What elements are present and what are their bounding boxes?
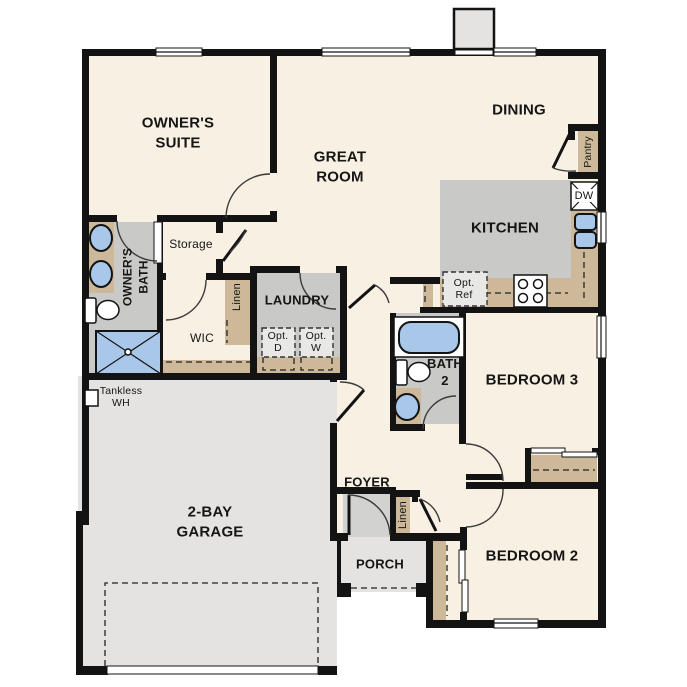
room-label-bedroom2: BEDROOM 2 [486, 546, 579, 566]
room-label-kitchen: KITCHEN [471, 218, 539, 238]
bedroom3-bypass-a [531, 448, 565, 453]
label-linen-wic: Linen [230, 283, 244, 311]
room-label-laundry: LAUNDRY [265, 293, 329, 310]
room-label-bedroom3: BEDROOM 3 [486, 370, 579, 390]
label-dishwasher: DW [575, 189, 594, 203]
room-label-owners-suite: OWNER'S SUITE [142, 114, 214, 153]
bedroom2-bypass-a [459, 550, 465, 583]
shower [96, 331, 161, 374]
room-label-porch: PORCH [356, 557, 404, 574]
label-wic: WIC [190, 331, 214, 347]
vanity-sink-1 [90, 225, 112, 251]
garage-door [107, 666, 318, 674]
floor-plan: OWNER'S SUITE GREAT ROOM DINING KITCHEN … [0, 0, 687, 687]
room-label-dining: DINING [492, 100, 546, 120]
kitchen-sink-1 [575, 214, 596, 230]
floor-plan-drawing [0, 0, 687, 687]
stove [514, 275, 547, 307]
label-opt-ref: Opt. Ref [454, 277, 475, 301]
label-storage: Storage [169, 237, 212, 253]
vanity-sink-2 [90, 261, 112, 287]
bath-pocket-door [154, 222, 162, 263]
toilet-bowl-owners [97, 301, 119, 320]
label-linen-foyer: Linen [396, 501, 410, 529]
bedroom2-closet-shelf [433, 541, 446, 620]
bedroom3-closet-shelf [531, 455, 597, 482]
chimney [454, 9, 494, 49]
room-label-owners-bath: OWNER'S BATH [120, 248, 151, 306]
bedroom2-bypass-b [462, 580, 468, 612]
room-label-bath2: BATH 2 [427, 356, 463, 390]
room-label-foyer: FOYER [344, 475, 390, 492]
bath2-sink [395, 394, 419, 420]
label-opt-dryer: Opt. D [268, 330, 289, 354]
bedroom3-bypass-b [562, 452, 597, 457]
tankless-wh-unit [85, 390, 98, 406]
toilet-tank-bath2 [396, 360, 407, 385]
label-opt-washer: Opt. W [306, 330, 327, 354]
bath2-tub [394, 317, 464, 357]
laundry-counter [257, 357, 340, 374]
room-label-garage: 2-BAY GARAGE [176, 503, 243, 542]
toilet-tank-owners [85, 298, 96, 323]
label-pantry: Pantry [582, 136, 594, 168]
kitchen-sink-2 [575, 232, 596, 248]
room-label-great-room: GREAT ROOM [314, 148, 366, 187]
label-tankless-wh: Tankless WH [100, 385, 142, 409]
